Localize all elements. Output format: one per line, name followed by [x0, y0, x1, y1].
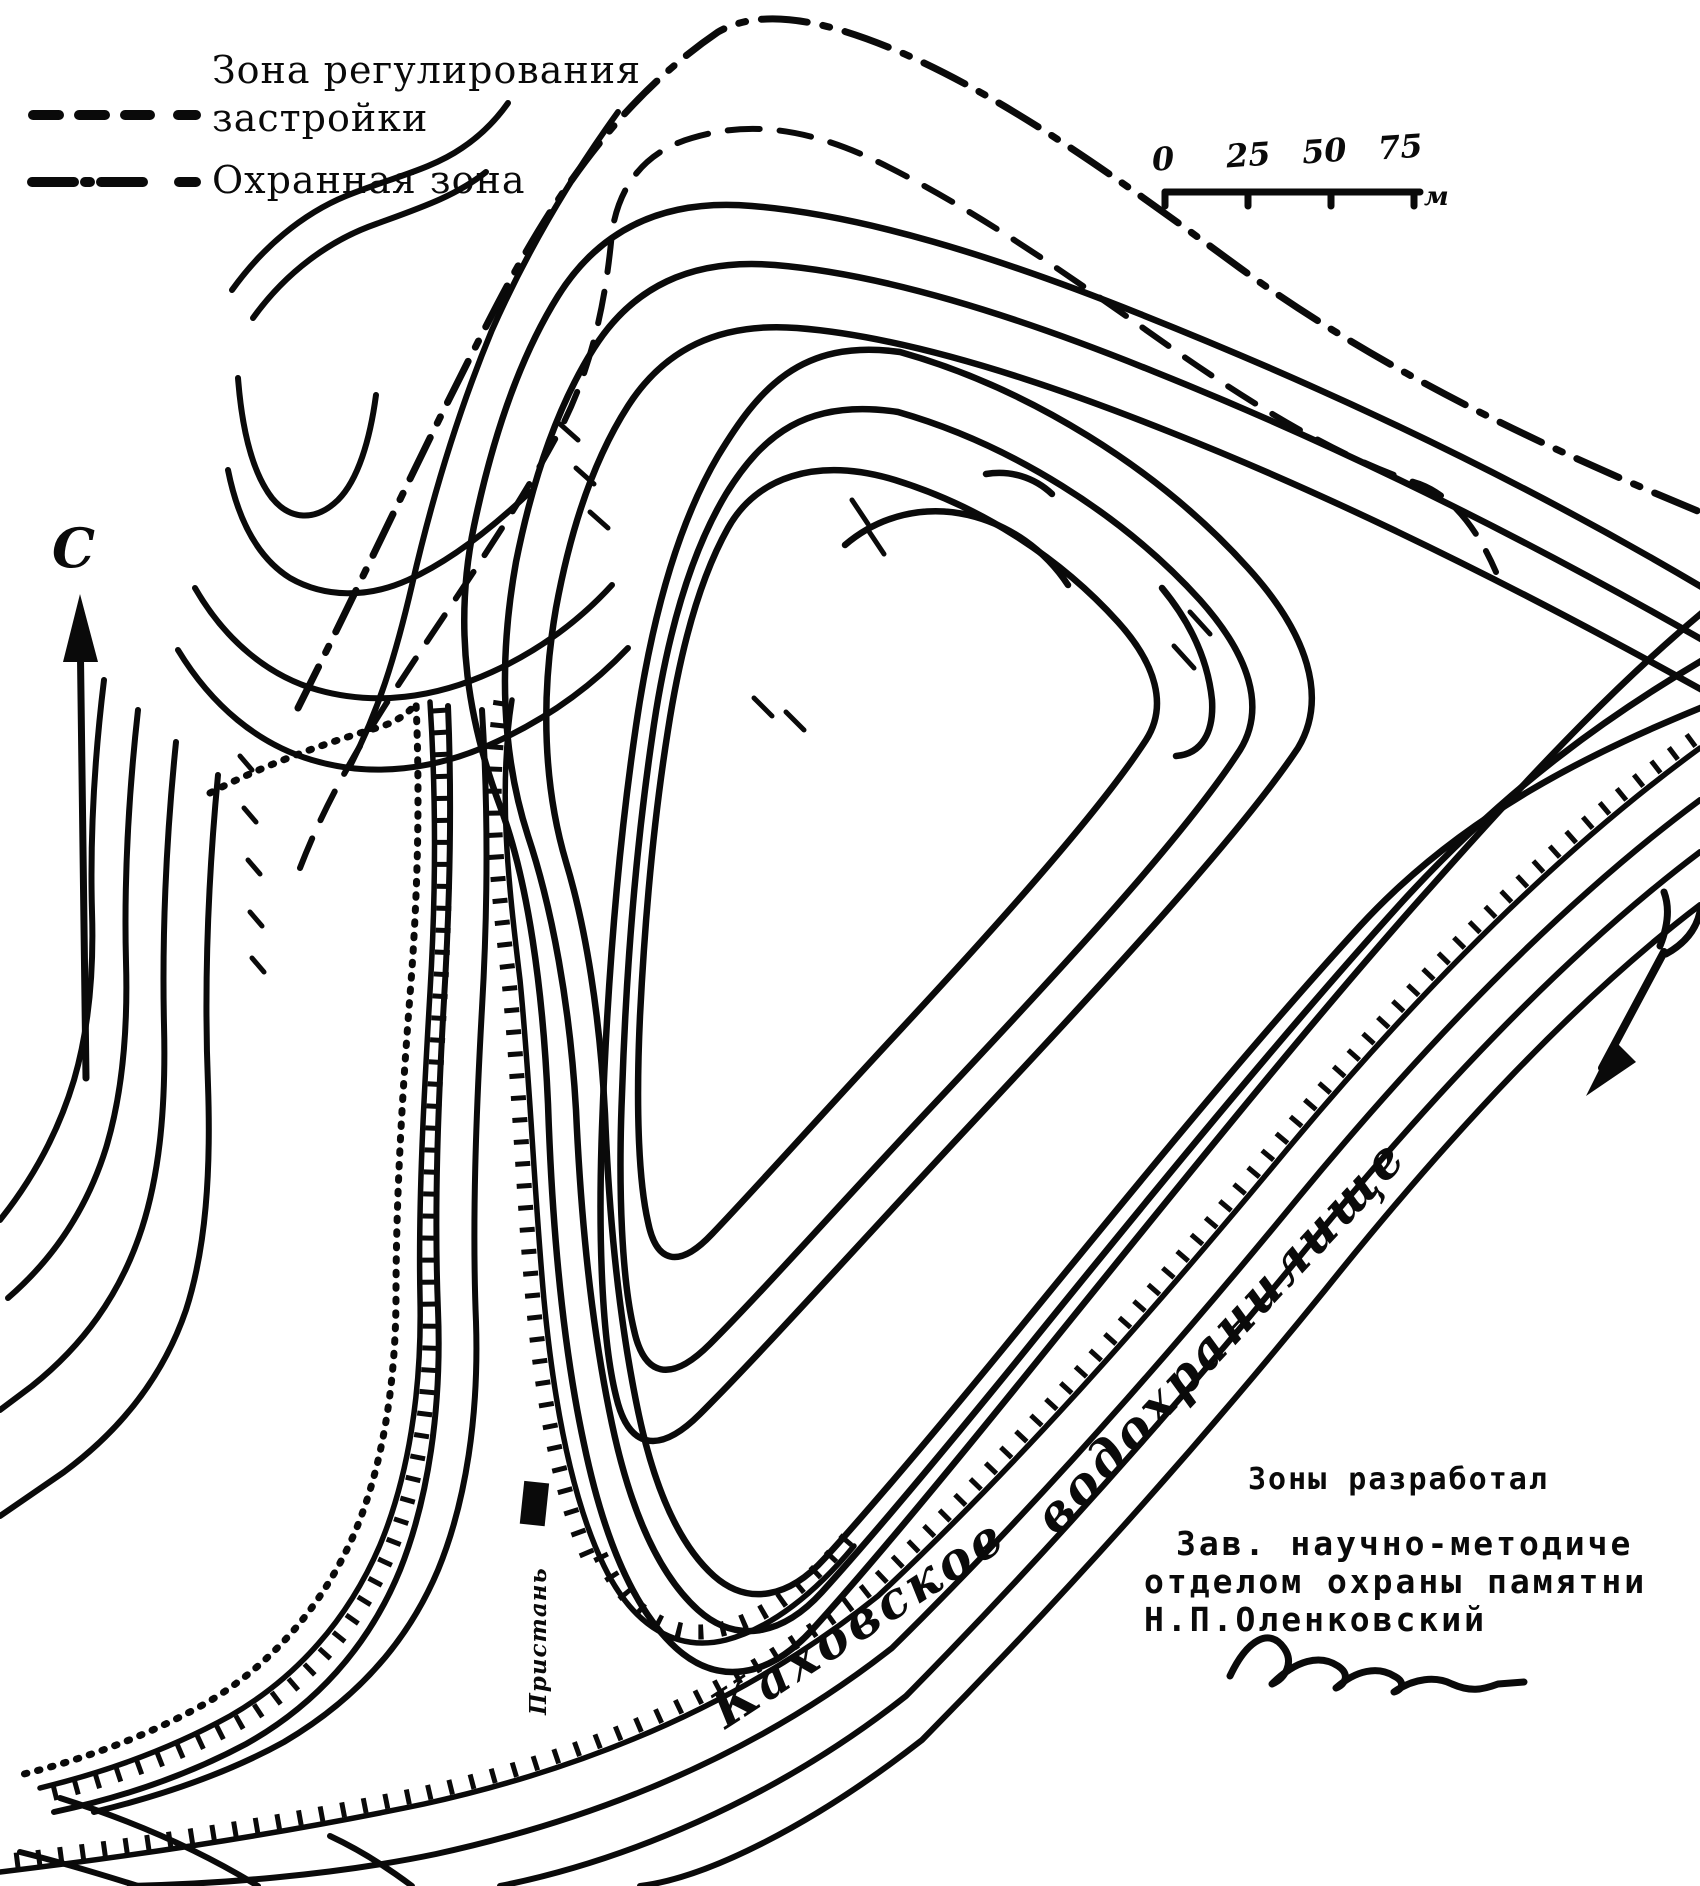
legend-label-regulation-line2: застройки: [212, 96, 428, 140]
scale-tick-75: 75: [1377, 126, 1424, 167]
pier-label: Пристань: [525, 1567, 552, 1715]
scale-unit: м: [1424, 182, 1449, 212]
credits-line4: Н.П.Оленковский: [1144, 1600, 1487, 1639]
map-page: Зона регулирования застройки Охранная зо…: [0, 0, 1700, 1886]
plateau-rim-contour: [638, 470, 1212, 1257]
slope-tick-marks: [560, 424, 1210, 730]
signature-stroke: [1230, 1638, 1524, 1692]
scale-bar-line: [1165, 192, 1420, 206]
credits-line1: Зоны разработал: [1248, 1462, 1549, 1497]
ravine-upper-contours: [178, 103, 628, 770]
credits-line2: Зав. научно-методиче: [1176, 1524, 1633, 1563]
scale-tick-25: 25: [1225, 134, 1272, 175]
scale-tick-50: 50: [1301, 130, 1348, 171]
hachure-dashes: [240, 756, 264, 972]
credits-line3: отделом охраны памятни: [1144, 1562, 1647, 1601]
southwest-arrow: [1586, 892, 1700, 1096]
pier-marker: [520, 1481, 549, 1526]
scale-tick-0: 0: [1151, 139, 1176, 178]
north-label: С: [52, 516, 95, 580]
shoreline-contours: [130, 800, 1700, 1886]
legend-label-protection: Охранная зона: [212, 158, 526, 202]
spur-east-scarp-hachured: [40, 702, 445, 1794]
ravine-west-wall-contours: [0, 680, 218, 1516]
legend-label-regulation-line1: Зона регулирования: [212, 48, 641, 92]
